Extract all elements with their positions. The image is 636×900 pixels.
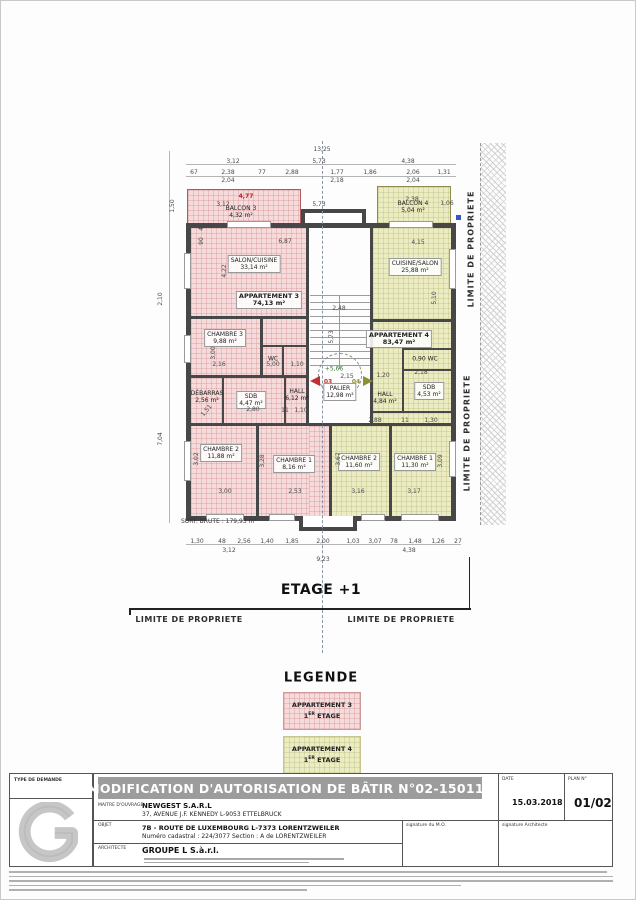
type-de-demande-label: TYPE DE DEMANDE xyxy=(14,778,62,783)
dimension-label: 5,10 xyxy=(432,291,438,304)
divider xyxy=(10,798,92,799)
dimension-label: 2,38 xyxy=(405,197,418,203)
dimension-label: 3,16 xyxy=(351,489,364,495)
dimension-label: 11 xyxy=(281,408,289,414)
divider xyxy=(402,820,403,866)
legend-apartment-4-floor: 1ER ETAGE xyxy=(304,754,341,765)
plan-number-label: PLAN N° xyxy=(568,777,587,782)
dimension-label: 4,15 xyxy=(411,240,424,246)
dimension-label: 1,31 xyxy=(437,170,450,176)
dimension-label: 4,38 xyxy=(402,548,415,554)
dimension-label: 2,16 xyxy=(212,362,225,368)
plan-sheet: LIMITE DE PROPRIETE LIMITE DE PROPRIETE … xyxy=(0,0,636,900)
dimension-label: 2,56 xyxy=(237,539,250,545)
maitre-douvrage-label: MAITRE D'OUVRAGE xyxy=(98,803,143,808)
dimension-label: 3,00 xyxy=(218,489,231,495)
document-title-bar: MODIFICATION D'AUTORISATION DE BÂTIR N°0… xyxy=(98,777,482,799)
limite-propriete-bottom-right: LIMITE DE PROPRIETE xyxy=(347,615,454,624)
dimension-label: 1,51 xyxy=(200,404,213,418)
dimension-label: 3,12 xyxy=(216,202,229,208)
dimension-label: 1,06 xyxy=(440,201,453,207)
dimension-label: 4,77 xyxy=(239,194,254,200)
signature-mo-label: signature du M.O. xyxy=(406,823,446,828)
dimension-label: 2,06 xyxy=(406,170,419,176)
legend-item-apartment-4: APPARTEMENT 4 1ER ETAGE xyxy=(283,736,361,774)
legend-item-apartment-3: APPARTEMENT 3 1ER ETAGE xyxy=(283,692,361,730)
type-de-demande-box: TYPE DE DEMANDE xyxy=(9,773,93,867)
dimension-label: 1,10 xyxy=(290,362,303,368)
dimension-label: 1,10 xyxy=(294,408,307,414)
dimension-label: 1,40 xyxy=(260,539,273,545)
boundary-line xyxy=(129,608,471,610)
dimension-label: 2,04 xyxy=(406,178,419,184)
dimension-label: 40 xyxy=(199,223,205,231)
objet-line2: Numéro cadastral : 224/3077 Section : A … xyxy=(142,833,326,840)
dimension-label: 1,20 xyxy=(376,373,389,379)
dimension-label: 2,15 xyxy=(340,374,353,380)
groupe-l-logo-icon xyxy=(18,802,84,864)
dimension-label: 27 xyxy=(454,539,462,545)
dimension-label: 5,00 xyxy=(266,362,279,368)
gross-surface-label: SURF. BRUTE : 179,93 m² xyxy=(181,518,257,525)
plan-number-value: 01/02 xyxy=(574,796,612,810)
dimension-label: 1,77 xyxy=(330,170,343,176)
dimension-label: 2,00 xyxy=(316,539,329,545)
dimension-label: 5,73 xyxy=(312,159,325,165)
disclaimer-fineprint xyxy=(9,876,613,878)
dimension-label: 2,88 xyxy=(368,418,381,424)
dimension-label: 1,50 xyxy=(170,199,176,212)
dimension-label: 2,38 xyxy=(221,170,234,176)
floor-title: ETAGE +1 xyxy=(281,582,361,598)
dimension-label: 13,25 xyxy=(313,147,330,153)
dimension-label: 9,23 xyxy=(316,557,329,563)
maitre-douvrage-name: NEWGEST S.A.R.L xyxy=(142,802,212,810)
dimension-label: 67 xyxy=(190,170,198,176)
dimension-label: 3,28 xyxy=(260,454,266,467)
dimension-label: 1,86 xyxy=(363,170,376,176)
dimension-label: 3,17 xyxy=(407,489,420,495)
dimension-label: 2,10 xyxy=(158,292,164,305)
dimension-label: 2,18 xyxy=(414,370,427,376)
dimension-label: 3,00 xyxy=(211,346,217,359)
disclaimer-fineprint xyxy=(9,871,607,873)
dimension-label: 11 xyxy=(401,418,409,424)
dimension-label: 2,88 xyxy=(285,170,298,176)
dimension-label: 5,73 xyxy=(312,202,325,208)
dimension-label: 3,07 xyxy=(368,539,381,545)
dimension-label: 78 xyxy=(390,539,398,545)
legend-apartment-3-floor: 1ER ETAGE xyxy=(304,710,341,721)
dimension-label: 2,04 xyxy=(221,178,234,184)
dimension-label: 2,80 xyxy=(246,407,259,413)
dimension-label: 1,03 xyxy=(346,539,359,545)
boundary-line-tick xyxy=(469,557,470,610)
divider xyxy=(94,843,402,844)
architect-address-fineprint xyxy=(144,862,309,864)
date-value: 15.03.2018 xyxy=(512,798,563,807)
maitre-douvrage-address: 37, AVENUE J.F. KENNEDY L-9053 ETTELBRUC… xyxy=(142,811,282,818)
dimension-label: 2,53 xyxy=(288,489,301,495)
dimension-label: 1,30 xyxy=(190,539,203,545)
dimension-label: 48 xyxy=(218,539,226,545)
dimension-label: 90 xyxy=(199,237,205,245)
date-label: DATE xyxy=(502,777,514,782)
dimension-label: 4,38 xyxy=(401,159,414,165)
objet-line1: 7B - ROUTE DE LUXEMBOURG L-7373 LORENTZW… xyxy=(142,824,340,832)
dimension-label: 6,87 xyxy=(278,239,291,245)
dimension-label: 3,67 xyxy=(336,452,342,465)
dimension-label: 3,12 xyxy=(222,548,235,554)
divider xyxy=(564,774,565,820)
boundary-line-tick xyxy=(129,608,131,615)
signature-architecte-label: signature Architecte xyxy=(502,823,548,828)
dimension-label: 4,22 xyxy=(222,264,228,277)
title-block: MODIFICATION D'AUTORISATION DE BÂTIR N°0… xyxy=(93,773,613,867)
dimension-label: 77 xyxy=(258,170,266,176)
disclaimer-fineprint xyxy=(9,889,307,891)
dimension-label: 1,26 xyxy=(431,539,444,545)
disclaimer-fineprint xyxy=(9,880,613,882)
limite-propriete-bottom-left: LIMITE DE PROPRIETE xyxy=(135,615,242,624)
dimension-label: 7,04 xyxy=(158,432,164,445)
dimension-label: 2,48 xyxy=(332,306,345,312)
disclaimer-fineprint xyxy=(9,885,461,887)
dimension-label: 1,85 xyxy=(285,539,298,545)
objet-label: OBJET xyxy=(98,823,112,828)
divider xyxy=(94,820,612,821)
dimension-label: 3,09 xyxy=(438,454,444,467)
legend-apartment-4-label: APPARTEMENT 4 xyxy=(292,745,352,754)
dimension-label: 5,73 xyxy=(329,330,335,343)
architect-address-fineprint xyxy=(144,858,344,860)
legend-apartment-3-label: APPARTEMENT 3 xyxy=(292,701,352,710)
architecte-label: ARCHITECTE xyxy=(98,846,126,851)
dimension-label: 3,02 xyxy=(194,452,200,465)
dimension-label: 2,18 xyxy=(330,178,343,184)
dimension-label: 1,48 xyxy=(408,539,421,545)
architecte-name: GROUPE L S.à.r.l. xyxy=(142,846,219,855)
legend-title: LEGENDE xyxy=(284,671,358,686)
dimension-label: 3,12 xyxy=(226,159,239,165)
dimension-label: 1,30 xyxy=(424,418,437,424)
